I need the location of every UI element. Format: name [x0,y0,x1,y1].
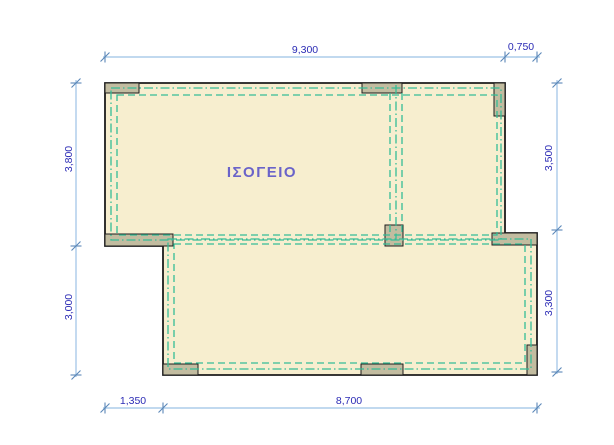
dim-label-top-width: 9,300 [292,44,318,56]
dim-label-left-upper: 3,800 [63,146,75,172]
floor-plan-canvas[interactable]: 9,300 0,750 1,350 8,700 3,800 3,000 3,50… [0,0,614,445]
room-label: ΙΣΟΓΕΙΟ [227,164,297,181]
dim-label-left-lower: 3,000 [63,294,75,320]
dim-label-bottom-left-offset: 1,350 [120,395,146,407]
dim-label-top-right-offset: 0,750 [508,41,534,53]
building-outline [105,83,537,375]
dim-label-right-upper: 3,500 [543,145,555,171]
column-bottom-right [527,345,537,375]
dim-label-bottom-width: 8,700 [336,395,362,407]
drawing-sheet: 9,300 0,750 1,350 8,700 3,800 3,000 3,50… [0,0,614,445]
dim-label-right-lower: 3,300 [543,290,555,316]
